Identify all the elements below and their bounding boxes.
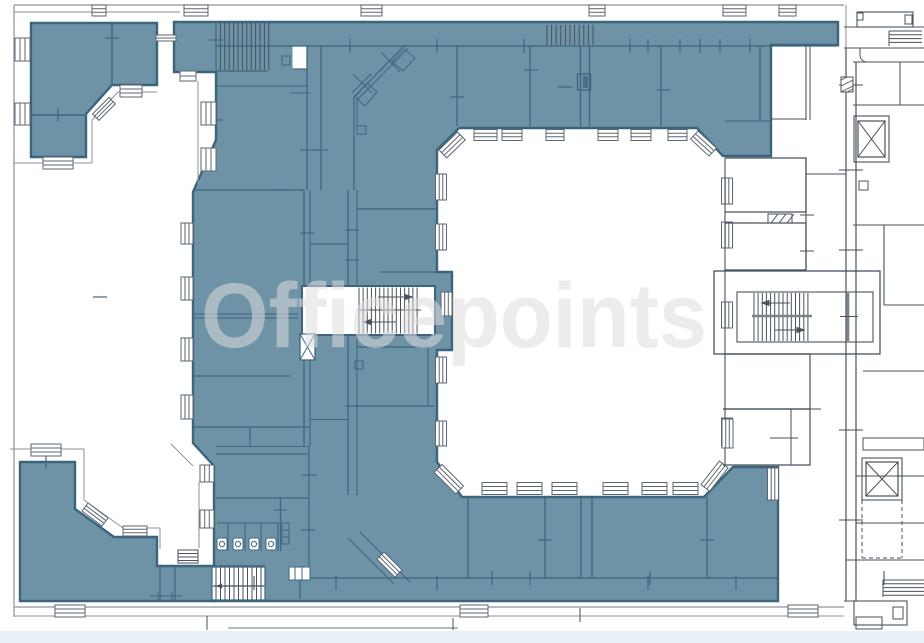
svg-text:Officepoints: Officepoints	[201, 265, 707, 367]
